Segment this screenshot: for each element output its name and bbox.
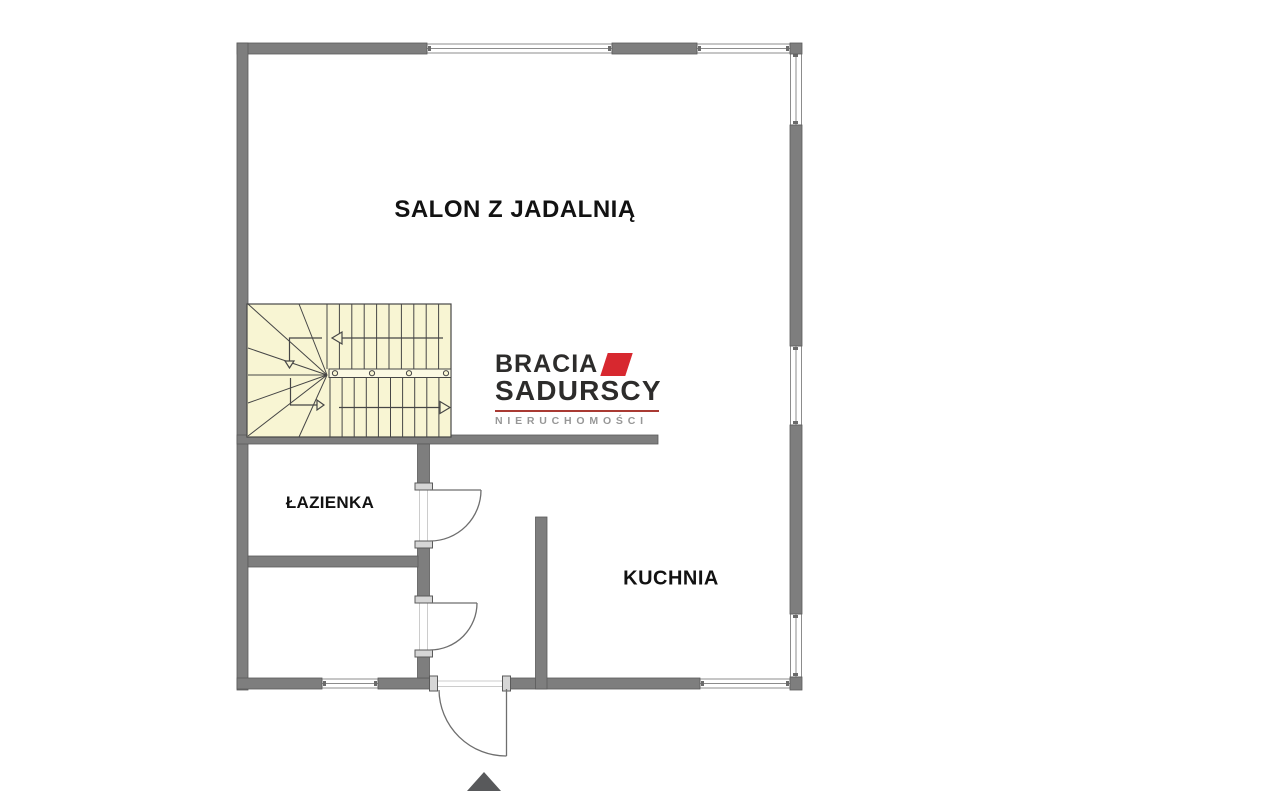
window-right-2: [791, 346, 802, 425]
logo-underline: [495, 410, 659, 412]
logo-red-flag-icon: [600, 353, 632, 376]
entrance-door: [439, 689, 507, 756]
window-top-1: [427, 44, 612, 53]
floor-plan-page: SALON Z JADALNIĄ ŁAZIENKA KUCHNIA BRACIA…: [0, 0, 1280, 791]
room-label-kuchnia: KUCHNIA: [623, 568, 719, 591]
lower-room-door: [430, 603, 477, 650]
window-right-1: [791, 53, 802, 125]
brand-logo: BRACIA SADURSCY NIERUCHOMOŚCI: [458, 348, 668, 448]
window-right-3: [791, 614, 802, 677]
stairs: [247, 304, 451, 437]
brand-name-line2: SADURSCY: [495, 375, 662, 407]
brand-tagline: NIERUCHOMOŚCI: [495, 415, 648, 427]
stair-rail: [329, 369, 451, 378]
window-bottom-left: [322, 679, 378, 688]
room-label-salon: SALON Z JADALNIĄ: [394, 196, 635, 224]
window-top-2: [697, 44, 790, 53]
bathroom-door: [430, 490, 481, 541]
entrance-arrow-icon: [467, 772, 501, 791]
room-label-lazienka: ŁAZIENKA: [286, 493, 374, 513]
doors: [430, 490, 507, 756]
interior-walls: [237, 435, 658, 689]
window-bottom-right: [700, 679, 790, 688]
